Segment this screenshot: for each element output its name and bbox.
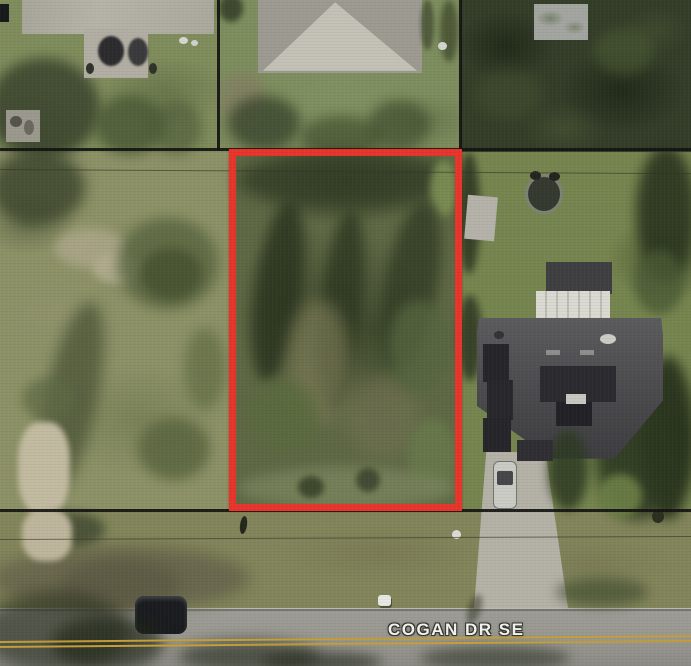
house-roof-rear — [546, 262, 612, 294]
parcel-boundary-line — [217, 0, 220, 150]
roof-shadow — [421, 0, 434, 50]
tree-shadow — [440, 0, 458, 62]
porch-step — [566, 394, 586, 404]
solar-panel-array — [483, 344, 509, 382]
highlighted-parcel-outline — [229, 149, 462, 511]
shed — [464, 195, 498, 241]
dirt-path — [22, 509, 72, 561]
roof-vent — [600, 334, 616, 344]
bush — [634, 250, 684, 314]
tree-shadow — [548, 430, 588, 510]
mailbox — [378, 595, 391, 606]
aerial-map: COGAN DR SE — [0, 0, 691, 666]
tree-shadow — [150, 100, 202, 155]
solar-panel-array — [487, 380, 513, 420]
parked-car — [494, 462, 516, 508]
street-label: COGAN DR SE — [388, 620, 524, 640]
yard-object — [191, 40, 198, 46]
bush — [22, 378, 74, 420]
tree-shadow — [228, 96, 300, 150]
yard-object — [179, 37, 188, 44]
tree-shadow — [420, 646, 570, 666]
tree-shadow — [368, 100, 430, 150]
tree-shadow — [556, 578, 648, 606]
shed-clutter — [10, 116, 22, 127]
yard-object — [438, 42, 447, 50]
solar-panel-array — [556, 402, 592, 426]
roof-in-trees — [534, 4, 588, 40]
bush — [184, 328, 226, 410]
entry-shadow — [517, 440, 553, 461]
skylight — [580, 350, 594, 355]
car-windshield — [497, 471, 513, 485]
lanai-roof — [536, 291, 610, 321]
patio-furniture — [98, 36, 124, 66]
canopy-highlight — [594, 28, 654, 74]
bush — [140, 248, 202, 300]
bush — [138, 418, 210, 480]
yard-object — [149, 63, 157, 74]
shed-clutter — [24, 120, 34, 135]
skylight — [546, 350, 560, 355]
patio-furniture — [128, 38, 148, 66]
yard-object — [86, 63, 94, 74]
tree-shadow — [262, 652, 382, 666]
roof-vent — [494, 331, 504, 339]
canopy-highlight — [474, 70, 544, 120]
dark-object — [0, 4, 9, 22]
parcel-boundary-line — [459, 0, 462, 150]
shed — [6, 110, 40, 142]
dirt-path — [18, 422, 70, 514]
solar-panel-array — [483, 418, 511, 452]
